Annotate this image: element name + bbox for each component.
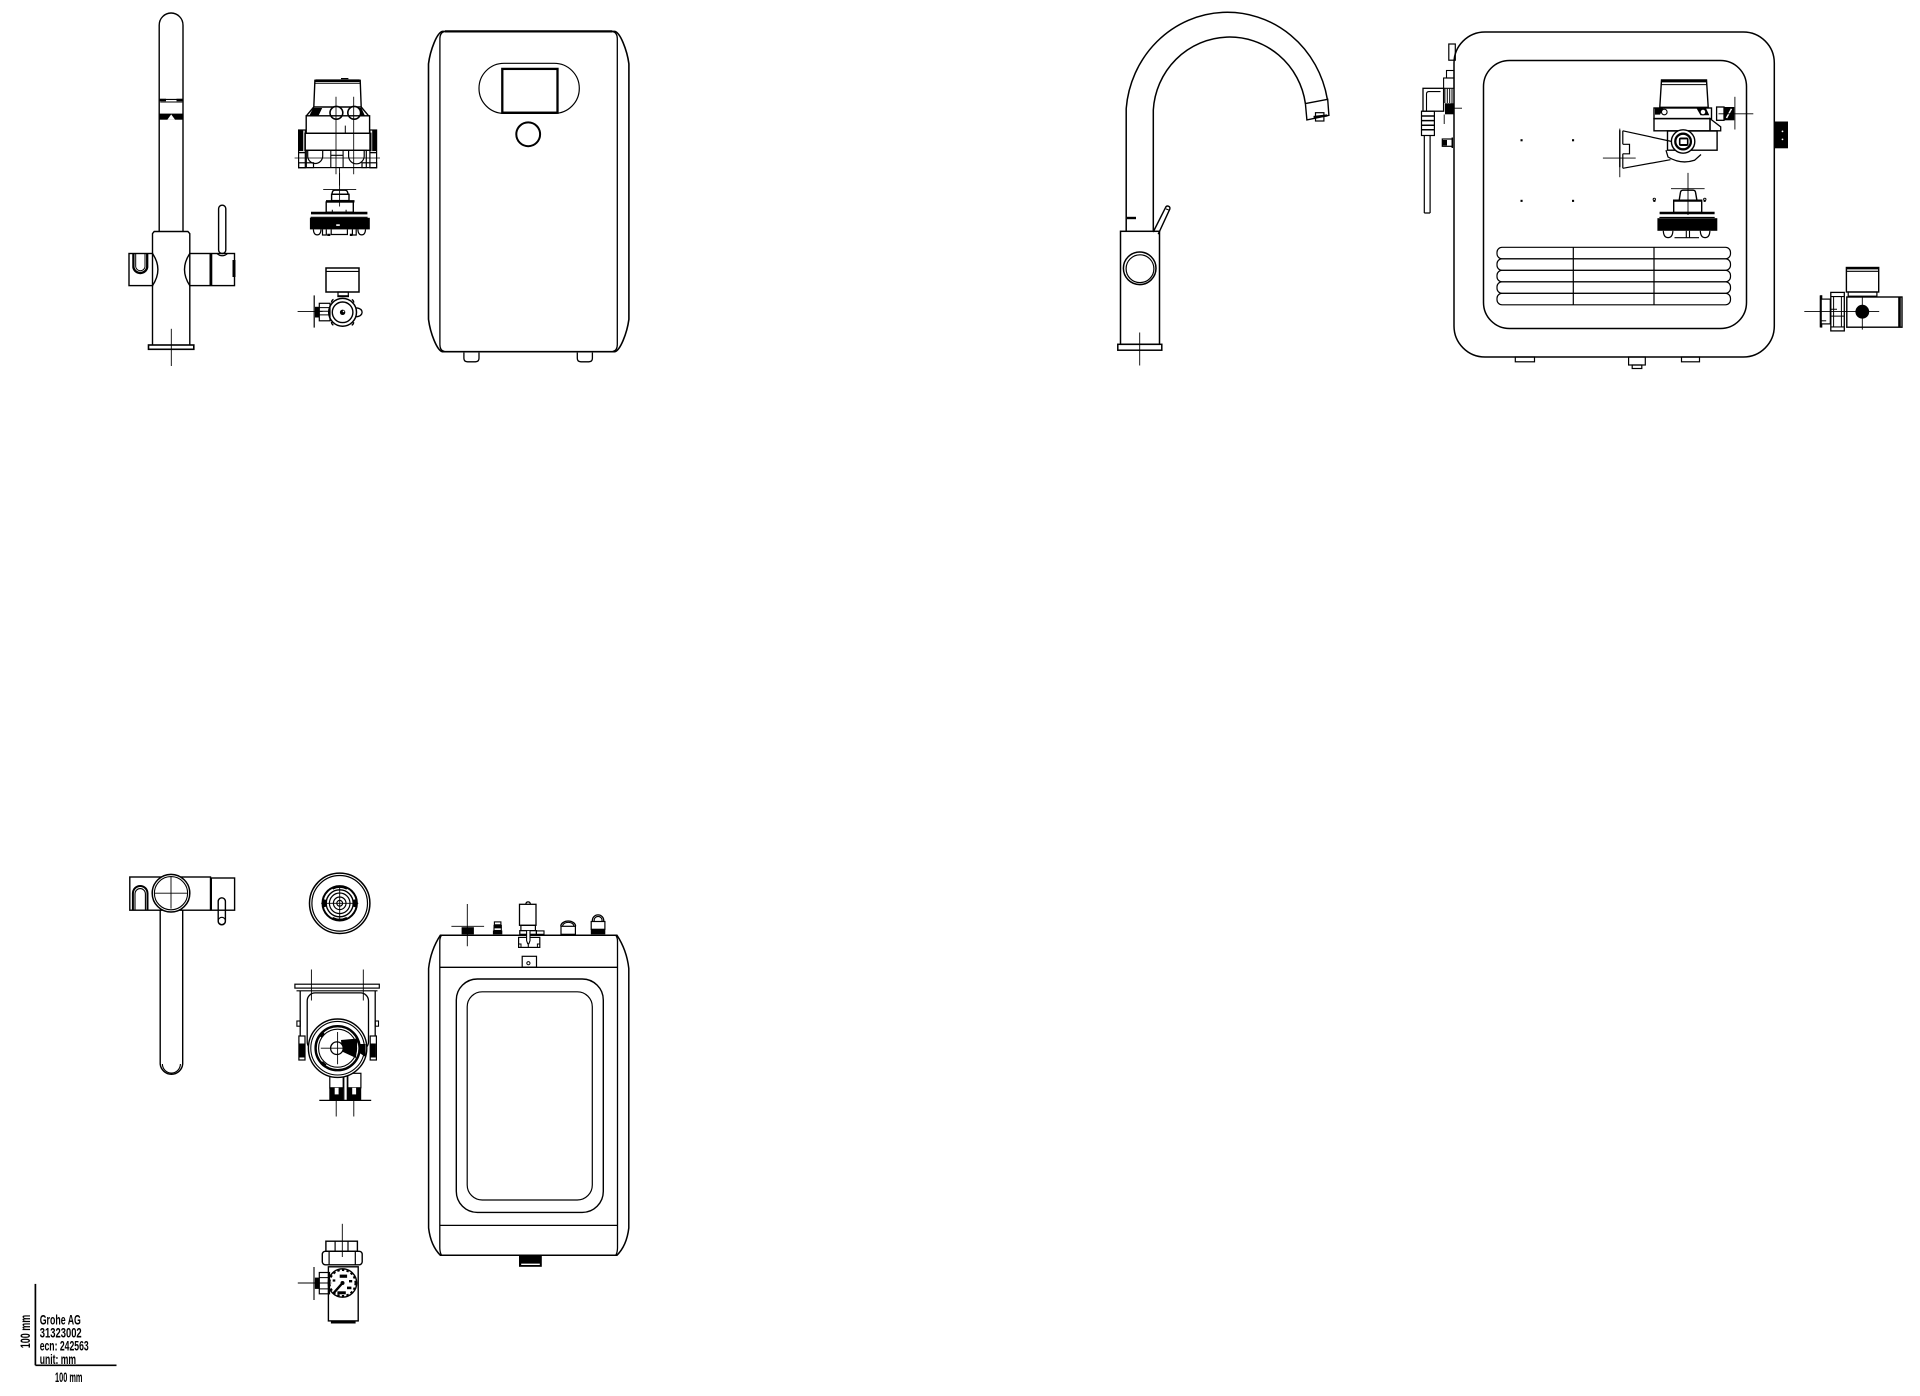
svg-text:unit: mm: unit: mm (40, 1351, 76, 1367)
svg-text:100 mm: 100 mm (17, 1315, 33, 1349)
svg-text:100 mm: 100 mm (55, 1369, 83, 1385)
